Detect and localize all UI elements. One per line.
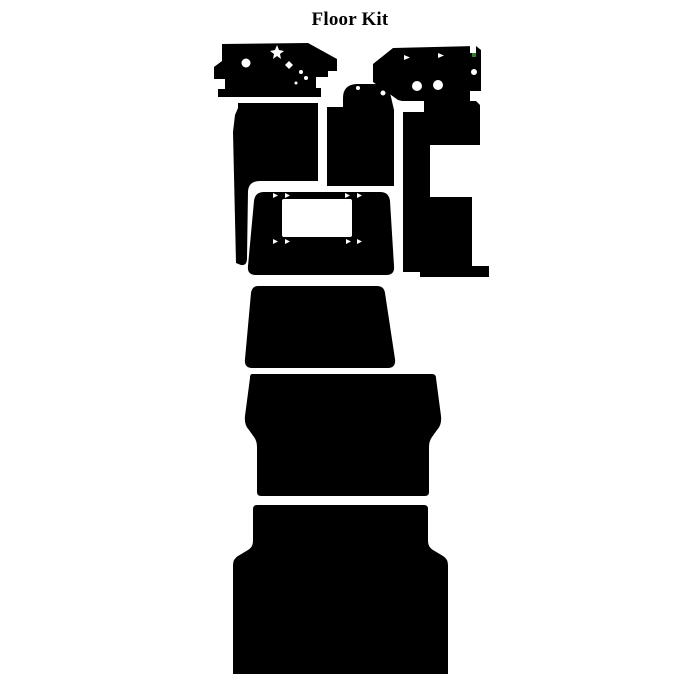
front-left-floor-panel-cutout [295,82,298,85]
front-right-floor-panel-cutout [472,53,476,57]
cab-floor-panel-shape [245,374,441,496]
front-left-floor-panel-cutout [242,59,251,68]
center-tunnel-panel [327,84,394,186]
front-right-floor-panel-cutout [470,46,476,53]
front-right-floor-panel-cutout [433,80,443,90]
front-right-floor-panel-cutout [412,81,422,91]
front-right-floor-panel-cutout [471,92,477,97]
floor-kit-illustration [0,0,700,700]
product-image: Floor Kit [0,0,700,700]
cab-floor-panel [245,374,441,496]
center-tunnel-panel-shape [327,84,394,186]
engine-cover-panel-cutout [282,199,352,237]
front-left-floor-panel-cutout [304,76,308,80]
front-left-floor-panel-cutout [299,70,303,74]
engine-cover-panel [248,192,394,275]
mid-floor-panel-shape [245,286,395,368]
mid-floor-panel [245,286,395,368]
right-floor-panel [403,101,489,277]
front-right-floor-panel-cutout [471,69,477,75]
rear-floor-panel [233,505,448,674]
front-left-floor-panel [214,43,337,97]
right-floor-panel-shape [403,101,489,277]
center-tunnel-panel-cutout [381,91,386,96]
center-tunnel-panel-cutout [356,86,360,90]
rear-floor-panel-shape [233,505,448,674]
